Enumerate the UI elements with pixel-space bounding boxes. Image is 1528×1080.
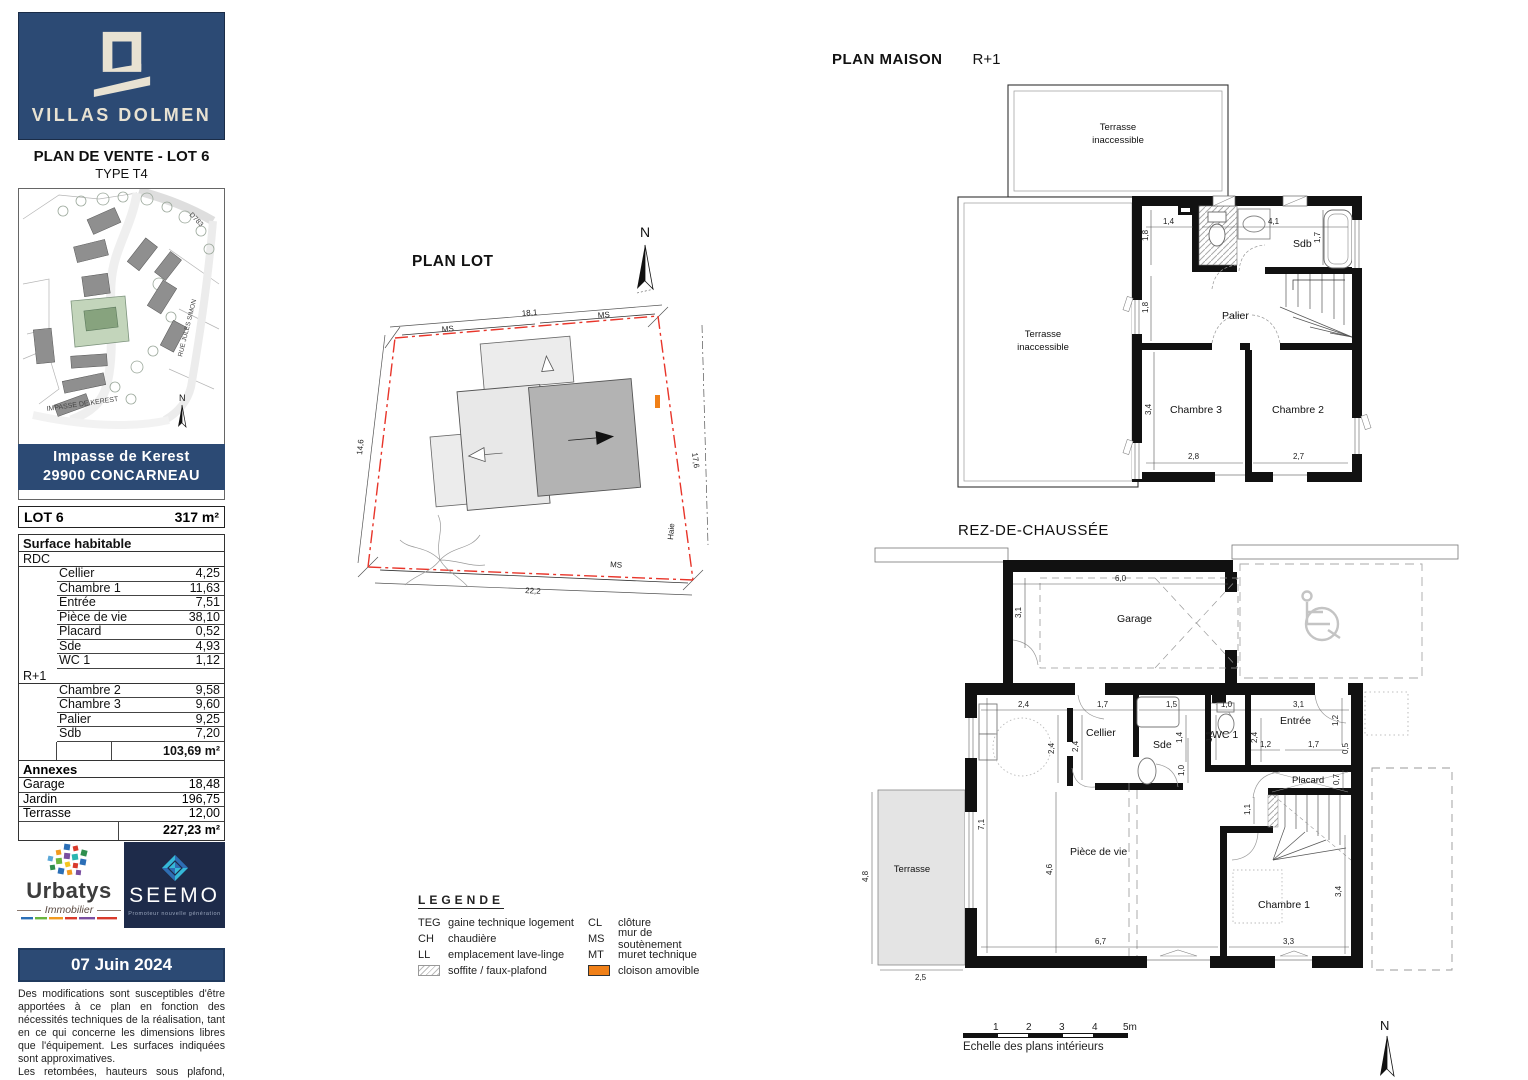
table-row: Chambre 29,58 xyxy=(57,684,224,699)
room-label-sdb: Sdb xyxy=(1293,238,1312,250)
svg-text:3,4: 3,4 xyxy=(1334,885,1343,897)
table-row: Jardin196,75 xyxy=(19,793,224,808)
legend-item: LLemplacement lave-linge xyxy=(418,948,578,961)
legend-item: TEGgaine technique logement xyxy=(418,916,578,929)
scale-caption: Echelle des plans intérieurs xyxy=(963,1041,1143,1053)
rdc-terrasse: Terrasse xyxy=(878,790,965,965)
legend-title: LEGENDE xyxy=(418,893,504,909)
seemo-logo: SEEMO Promoteur nouvelle génération xyxy=(124,842,225,928)
urbatys-mosaic-icon xyxy=(36,842,102,880)
svg-text:1,5: 1,5 xyxy=(1166,700,1178,709)
svg-text:N: N xyxy=(179,393,186,403)
svg-text:3,1: 3,1 xyxy=(1293,700,1305,709)
svg-text:2,4: 2,4 xyxy=(1018,700,1030,709)
svg-text:1,4: 1,4 xyxy=(1175,731,1184,743)
handicap-parking xyxy=(1240,564,1422,678)
svg-text:Haie: Haie xyxy=(666,522,676,540)
orange-swatch xyxy=(588,965,610,976)
svg-text:1,0: 1,0 xyxy=(1221,700,1233,709)
seemo-diamond-icon xyxy=(160,854,190,882)
table-row: Chambre 111,63 xyxy=(57,582,224,597)
svg-text:1,7: 1,7 xyxy=(1313,231,1322,243)
annexes-title: Annexes xyxy=(19,761,224,778)
legend-item: MTmuret technique xyxy=(588,948,718,961)
table-row: Palier9,25 xyxy=(57,713,224,728)
svg-text:2,4: 2,4 xyxy=(1071,740,1080,752)
room-label-piece: Pièce de vie xyxy=(1070,846,1127,858)
lot-area: 317 m² xyxy=(175,509,219,525)
plan-de-vente-page: VILLAS DOLMEN PLAN DE VENTE - LOT 6 TYPE… xyxy=(0,0,1528,1080)
room-label-cellier: Cellier xyxy=(1086,727,1116,739)
room-label-entree: Entrée xyxy=(1280,715,1311,727)
svg-text:14,6: 14,6 xyxy=(355,438,366,455)
address-line1: Impasse de Kerest xyxy=(18,448,225,467)
lot-header: LOT 6 317 m² xyxy=(18,506,225,528)
svg-text:7,1: 7,1 xyxy=(977,818,986,830)
scale-bar: 1 2 3 4 5m Echelle des plans intérieurs xyxy=(963,1022,1143,1053)
room-label-garage: Garage xyxy=(1117,613,1152,625)
svg-text:17,6: 17,6 xyxy=(690,452,701,469)
svg-text:2,4: 2,4 xyxy=(1047,742,1056,754)
address-line2: 29900 CONCARNEAU xyxy=(18,467,225,486)
dolmen-icon xyxy=(85,27,159,99)
room-label-ch1: Chambre 1 xyxy=(1258,899,1310,911)
room-label-placard: Placard xyxy=(1292,775,1324,786)
garden-dashed-area xyxy=(1372,768,1452,970)
svg-text:6,7: 6,7 xyxy=(1095,937,1107,946)
legend-item: CHchaudière xyxy=(418,932,578,945)
surface-table: Surface habitable RDC Cellier4,25 Chambr… xyxy=(18,534,225,762)
table-row: Placard0,52 xyxy=(57,625,224,640)
road-d783-band xyxy=(139,191,213,221)
svg-text:N: N xyxy=(1380,1018,1389,1033)
rdc-north-arrow: N xyxy=(1380,1018,1394,1076)
brand-name: VILLAS DOLMEN xyxy=(32,105,212,126)
lot-building xyxy=(84,307,118,331)
svg-text:Terrasse: Terrasse xyxy=(1025,329,1061,340)
cloison-amovible-marker xyxy=(655,395,660,408)
table-row: Sdb7,20 xyxy=(57,727,224,742)
table-row: Sde4,93 xyxy=(57,640,224,655)
urbatys-subtitle: Immobilier xyxy=(18,904,120,916)
svg-text:4,8: 4,8 xyxy=(861,870,870,882)
svg-text:Terrasse: Terrasse xyxy=(894,864,930,875)
svg-text:3,4: 3,4 xyxy=(1144,403,1153,415)
legend-item: soffite / faux-plafond xyxy=(418,964,578,977)
scale-ticks: 1 2 3 4 5m xyxy=(963,1022,1143,1033)
disclaimer-text: Des modifications sont susceptibles d'êt… xyxy=(18,988,225,1080)
partner-logos: Urbatys Immobilier SEEMO Promoteur nouve… xyxy=(18,842,225,928)
neighbour-wall-left xyxy=(875,548,1008,562)
table-row: Terrasse12,00 xyxy=(19,807,224,822)
table-row: Pièce de vie38,10 xyxy=(57,611,224,626)
plan-r1-title: PLAN MAISONR+1 xyxy=(832,51,1000,68)
room-label-palier: Palier xyxy=(1222,310,1249,322)
room-label-ch3: Chambre 3 xyxy=(1170,404,1222,416)
lot-buildings xyxy=(430,336,660,510)
svg-text:0,7: 0,7 xyxy=(1332,773,1341,785)
svg-text:MS: MS xyxy=(610,560,622,570)
disclaimer-paragraph: Des modifications sont susceptibles d'êt… xyxy=(18,988,225,1066)
svg-text:4,1: 4,1 xyxy=(1268,217,1280,226)
legend: LEGENDE TEGgaine technique logement CHch… xyxy=(418,893,718,977)
urbatys-logo: Urbatys Immobilier xyxy=(18,842,120,928)
washbasin-icon xyxy=(1243,216,1265,232)
svg-text:1,1: 1,1 xyxy=(1243,803,1252,815)
r1-terrace-top: Terrasse inaccessible xyxy=(1008,85,1228,197)
svg-text:MS: MS xyxy=(441,324,454,334)
washbasin-icon xyxy=(1138,758,1156,784)
kitchen-counter xyxy=(979,704,997,734)
doc-title: PLAN DE VENTE - LOT 6 xyxy=(18,148,225,165)
svg-text:N: N xyxy=(640,224,650,240)
svg-text:2,8: 2,8 xyxy=(1188,452,1200,461)
room-label-sde: Sde xyxy=(1153,739,1172,751)
svg-text:18,1: 18,1 xyxy=(521,308,538,318)
legend-item: MSmur de soutènement xyxy=(588,932,718,945)
date-banner: 07 Juin 2024 xyxy=(18,948,225,982)
svg-text:MS: MS xyxy=(597,310,610,320)
plan-rdc-title: REZ-DE-CHAUSSÉE xyxy=(958,522,1109,539)
svg-text:1,2: 1,2 xyxy=(1260,740,1272,749)
table-row: Garage18,48 xyxy=(19,778,224,793)
plan-lot-drawing: N xyxy=(340,215,730,620)
garage: Garage 6,0 3,1 xyxy=(1013,574,1238,668)
svg-text:1,0: 1,0 xyxy=(1177,764,1186,776)
svg-text:1,1: 1,1 xyxy=(1205,730,1214,742)
house-footprint-dark xyxy=(528,379,640,497)
scale-bar-segments xyxy=(963,1033,1128,1038)
table-row: Cellier4,25 xyxy=(57,567,224,582)
svg-text:1,7: 1,7 xyxy=(1097,700,1109,709)
svg-text:2,4: 2,4 xyxy=(1250,731,1259,743)
urbatys-name: Urbatys xyxy=(26,878,111,904)
svg-text:1,4: 1,4 xyxy=(1163,217,1175,226)
terrace-footprint xyxy=(480,336,574,390)
section-rdc: RDC xyxy=(19,552,224,567)
location-map-drawing: D783 RUE JULES SIMON IMPASSE DE KEREST N xyxy=(19,189,224,442)
svg-text:inaccessible: inaccessible xyxy=(1092,135,1144,146)
plan-r1-drawing: Terrasse inaccessible Terrasse inaccessi… xyxy=(935,75,1405,500)
svg-text:2,5: 2,5 xyxy=(915,973,927,982)
table-row: Entrée7,51 xyxy=(57,596,224,611)
surface-total-row: 103,69 m² xyxy=(19,742,224,761)
svg-text:6,0: 6,0 xyxy=(1115,574,1127,583)
r1-terrace-left: Terrasse inaccessible xyxy=(958,197,1138,487)
svg-text:Terrasse: Terrasse xyxy=(1100,122,1136,133)
svg-text:1,2: 1,2 xyxy=(1331,714,1340,726)
location-map: D783 RUE JULES SIMON IMPASSE DE KEREST N… xyxy=(18,188,225,500)
room-label-ch2: Chambre 2 xyxy=(1272,404,1324,416)
surface-total: 103,69 m² xyxy=(112,742,224,761)
lot-label: LOT 6 xyxy=(24,509,64,525)
wheelchair-icon xyxy=(1303,592,1341,641)
svg-text:1,7: 1,7 xyxy=(1308,740,1320,749)
svg-text:3,3: 3,3 xyxy=(1283,937,1295,946)
svg-text:4,6: 4,6 xyxy=(1045,863,1054,875)
seemo-name: SEEMO xyxy=(129,884,220,908)
urbatys-services-strip xyxy=(21,916,117,920)
surface-table-title: Surface habitable xyxy=(19,535,224,552)
seemo-subtitle: Promoteur nouvelle génération xyxy=(128,911,221,917)
svg-text:3,1: 3,1 xyxy=(1014,606,1023,618)
table-row: WC 11,12 xyxy=(57,654,224,669)
neighbour-wall-right xyxy=(1232,545,1458,559)
svg-text:2,7: 2,7 xyxy=(1293,452,1305,461)
lot-north-arrow: N xyxy=(637,224,654,293)
road-kerest-band xyxy=(33,415,169,425)
annexes-table: Annexes Garage18,48 Jardin196,75 Terrass… xyxy=(18,760,225,841)
plan-rdc-drawing: Terrasse Garage 6,0 3,1 xyxy=(860,540,1505,1080)
annexes-total: 227,23 m² xyxy=(119,822,224,840)
hatch-swatch xyxy=(418,965,440,976)
porch-dotted xyxy=(1365,692,1408,735)
svg-text:22,2: 22,2 xyxy=(525,586,542,596)
brand-logo: VILLAS DOLMEN xyxy=(18,12,225,140)
doc-subtitle: TYPE T4 xyxy=(18,166,225,181)
address-banner: Impasse de Kerest 29900 CONCARNEAU xyxy=(18,444,225,490)
svg-text:1,8: 1,8 xyxy=(1141,301,1150,313)
svg-text:1,8: 1,8 xyxy=(1141,229,1150,241)
svg-text:0,5: 0,5 xyxy=(1341,742,1350,754)
disclaimer-paragraph: Les retombées, hauteurs sous plafond, al… xyxy=(18,1066,225,1080)
svg-text:inaccessible: inaccessible xyxy=(1017,342,1069,353)
legend-item: cloison amovible xyxy=(588,964,718,977)
tree-sketch xyxy=(400,515,485,587)
annexes-total-row: 227,23 m² xyxy=(19,822,224,840)
table-row: Chambre 39,60 xyxy=(57,698,224,713)
section-r1: R+1 xyxy=(19,669,224,684)
toilet-tank xyxy=(1208,212,1226,222)
